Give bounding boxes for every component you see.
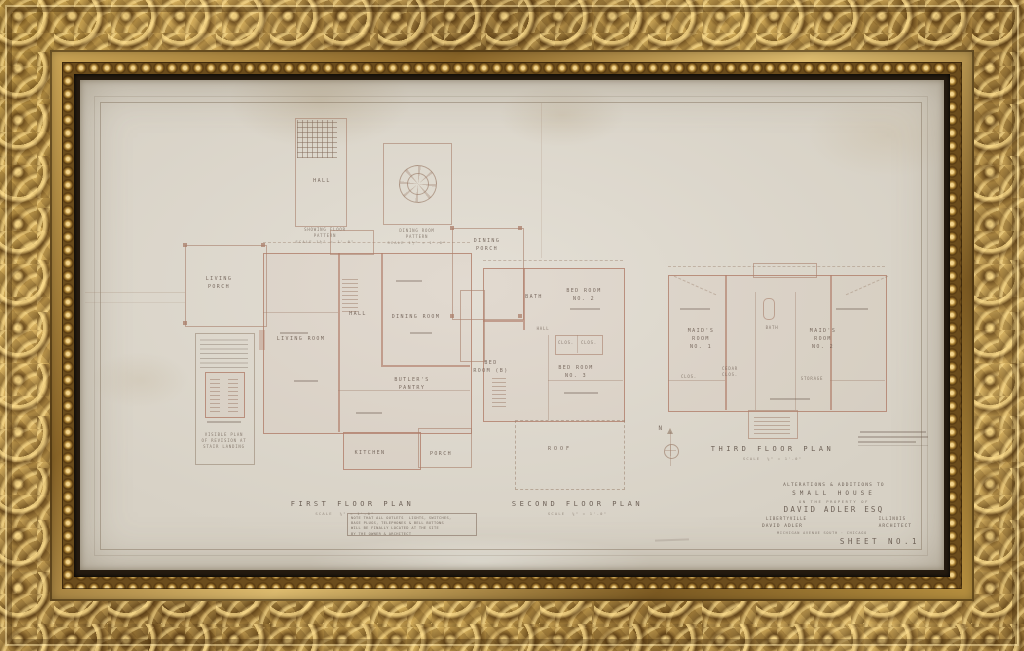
- titleblock-address: MICHIGAN AVENUE SOUTH · CHICAGO: [762, 531, 882, 535]
- room-label-dining-room: DINING ROOM: [380, 314, 452, 322]
- titleblock-state: ILLINOIS: [870, 516, 906, 521]
- room-label-roof: ROOF: [538, 446, 582, 454]
- room-label-porch: PORCH: [420, 451, 462, 459]
- illegible-stamp-line: [860, 431, 926, 433]
- porch-column: [518, 226, 522, 230]
- annotation-stroke: [680, 308, 710, 310]
- partition-wall: [830, 380, 885, 381]
- porch-column: [261, 243, 265, 247]
- partition-wall: [795, 292, 796, 410]
- bathtub-fixture: [763, 298, 775, 320]
- stair-run-hatch: [228, 376, 238, 412]
- stair-run-hatch: [210, 376, 220, 412]
- partition-wall: [263, 312, 338, 313]
- annotation-stroke: [770, 398, 810, 400]
- paper-crease: [541, 103, 542, 258]
- fireplace: [259, 330, 265, 350]
- annotation-stroke: [207, 421, 241, 423]
- stair-revision-caption: VISIBLE PLAN OF REVISION AT STAIR LANDIN…: [193, 432, 255, 451]
- third-floor-dormer: [753, 263, 817, 278]
- porch-column: [450, 226, 454, 230]
- illegible-note-paragraph: [200, 338, 248, 368]
- north-arrow-head: [667, 428, 673, 434]
- room-label-maids-room-1: MAID'S ROOM NO. 1: [676, 328, 726, 351]
- room-label-closet-3f: CLOS.: [676, 374, 702, 380]
- annotation-stroke: [280, 332, 308, 334]
- illegible-stamp-underline: [858, 445, 928, 446]
- room-label-cedar-closet: CEDAR CLOS.: [714, 366, 746, 378]
- titleblock-client-name: DAVID ADLER ESQ: [764, 505, 904, 514]
- dimension-line: [483, 260, 623, 261]
- room-label-hall-2f: HALL: [528, 326, 558, 332]
- titleblock-project-line: ALTERATIONS & ADDITIONS TO: [768, 483, 900, 488]
- room-label-butlers-pantry: BUTLER'S PANTRY: [386, 377, 438, 393]
- hall-pattern-hatch: [297, 120, 337, 158]
- room-label-hall: HALL: [342, 311, 374, 319]
- stair-run-hatch: [492, 375, 506, 407]
- titleblock-property-line: ON THE PROPERTY OF: [768, 499, 900, 504]
- second-floor-title: SECOND FLOOR PLAN: [495, 500, 660, 508]
- outlet-note-box: NOTE THAT ALL OUTLETS LIGHTS, SWITCHES, …: [347, 513, 477, 536]
- outlet-note-line-4: BY THE OWNER & ARCHITECT: [351, 532, 473, 537]
- stair-run-hatch: [754, 414, 790, 434]
- annotation-stroke: [396, 280, 422, 282]
- north-arrow-label: N: [654, 424, 668, 433]
- construction-line: [85, 292, 185, 293]
- stair-run-hatch: [342, 276, 358, 312]
- titleblock-architect-name: DAVID ADLER: [762, 524, 834, 529]
- room-label-hall-pattern: HALL: [302, 178, 342, 186]
- annotation-stroke: [570, 308, 600, 310]
- illegible-stamp-line: [858, 441, 916, 443]
- room-label-dining-porch: DINING PORCH: [462, 238, 512, 254]
- framed-architectural-drawing: HALL SHOWING FLOOR PATTERN SCALE 1½" = 1…: [0, 0, 1024, 651]
- titleblock-city: LIBERTYVILLE: [766, 516, 830, 521]
- dining-pattern-rosette-inner: [407, 173, 429, 195]
- partition-wall: [381, 253, 383, 365]
- partition-wall: [483, 320, 523, 322]
- room-label-living-room: LIVING ROOM: [266, 336, 336, 344]
- annotation-stroke: [564, 392, 598, 394]
- annotation-stroke: [836, 308, 868, 310]
- partition-wall: [755, 292, 756, 410]
- room-label-maids-room-2: MAID'S ROOM NO. 2: [798, 328, 848, 351]
- second-floor-scale: SCALE ¼" = 1'-0": [505, 511, 650, 516]
- room-label-closet-a: CLOS.: [555, 340, 577, 346]
- titleblock-project-name: SMALL HOUSE: [768, 490, 900, 497]
- annotation-stroke: [356, 412, 382, 414]
- room-label-kitchen: KITCHEN: [348, 450, 392, 458]
- compass-circle: [664, 444, 679, 459]
- room-label-bedroom-3: BED ROOM NO. 3: [552, 365, 600, 381]
- second-floor-left-bay: [460, 290, 485, 362]
- room-label-bedroom-2: BED ROOM NO. 2: [560, 288, 608, 304]
- annotation-stroke: [294, 380, 318, 382]
- compass-cross-h: [665, 450, 676, 451]
- partition-wall: [381, 365, 470, 367]
- illegible-stamp-line: [858, 436, 928, 438]
- partition-wall: [548, 335, 549, 420]
- room-label-bath-2f: BATH: [518, 294, 550, 302]
- first-floor-title: FIRST FLOOR PLAN: [280, 500, 425, 508]
- titleblock-architect-role: ARCHITECT: [860, 524, 912, 529]
- room-label-storage: STORAGE: [790, 376, 834, 382]
- room-label-bedroom-b: BED ROOM (B): [470, 360, 512, 376]
- third-floor-title: THIRD FLOOR PLAN: [705, 445, 840, 453]
- titleblock-sheet-number: SHEET NO.1: [835, 537, 925, 546]
- partition-wall: [338, 253, 340, 432]
- first-floor-entry-vestibule: [330, 230, 374, 255]
- construction-line: [85, 302, 185, 303]
- annotation-stroke: [410, 332, 432, 334]
- drawing-sheet: HALL SHOWING FLOOR PATTERN SCALE 1½" = 1…: [80, 80, 944, 570]
- roof-outline-dashed: [515, 420, 625, 490]
- room-label-living-porch: LIVING PORCH: [197, 276, 241, 292]
- third-floor-scale: SCALE ¼" = 1'-0": [715, 456, 830, 461]
- room-label-closet-b: CLOS.: [578, 340, 600, 346]
- porch-column: [183, 321, 187, 325]
- porch-column: [183, 243, 187, 247]
- rear-porch-outline: [418, 428, 472, 468]
- room-label-bath-3f: BATH: [758, 325, 786, 331]
